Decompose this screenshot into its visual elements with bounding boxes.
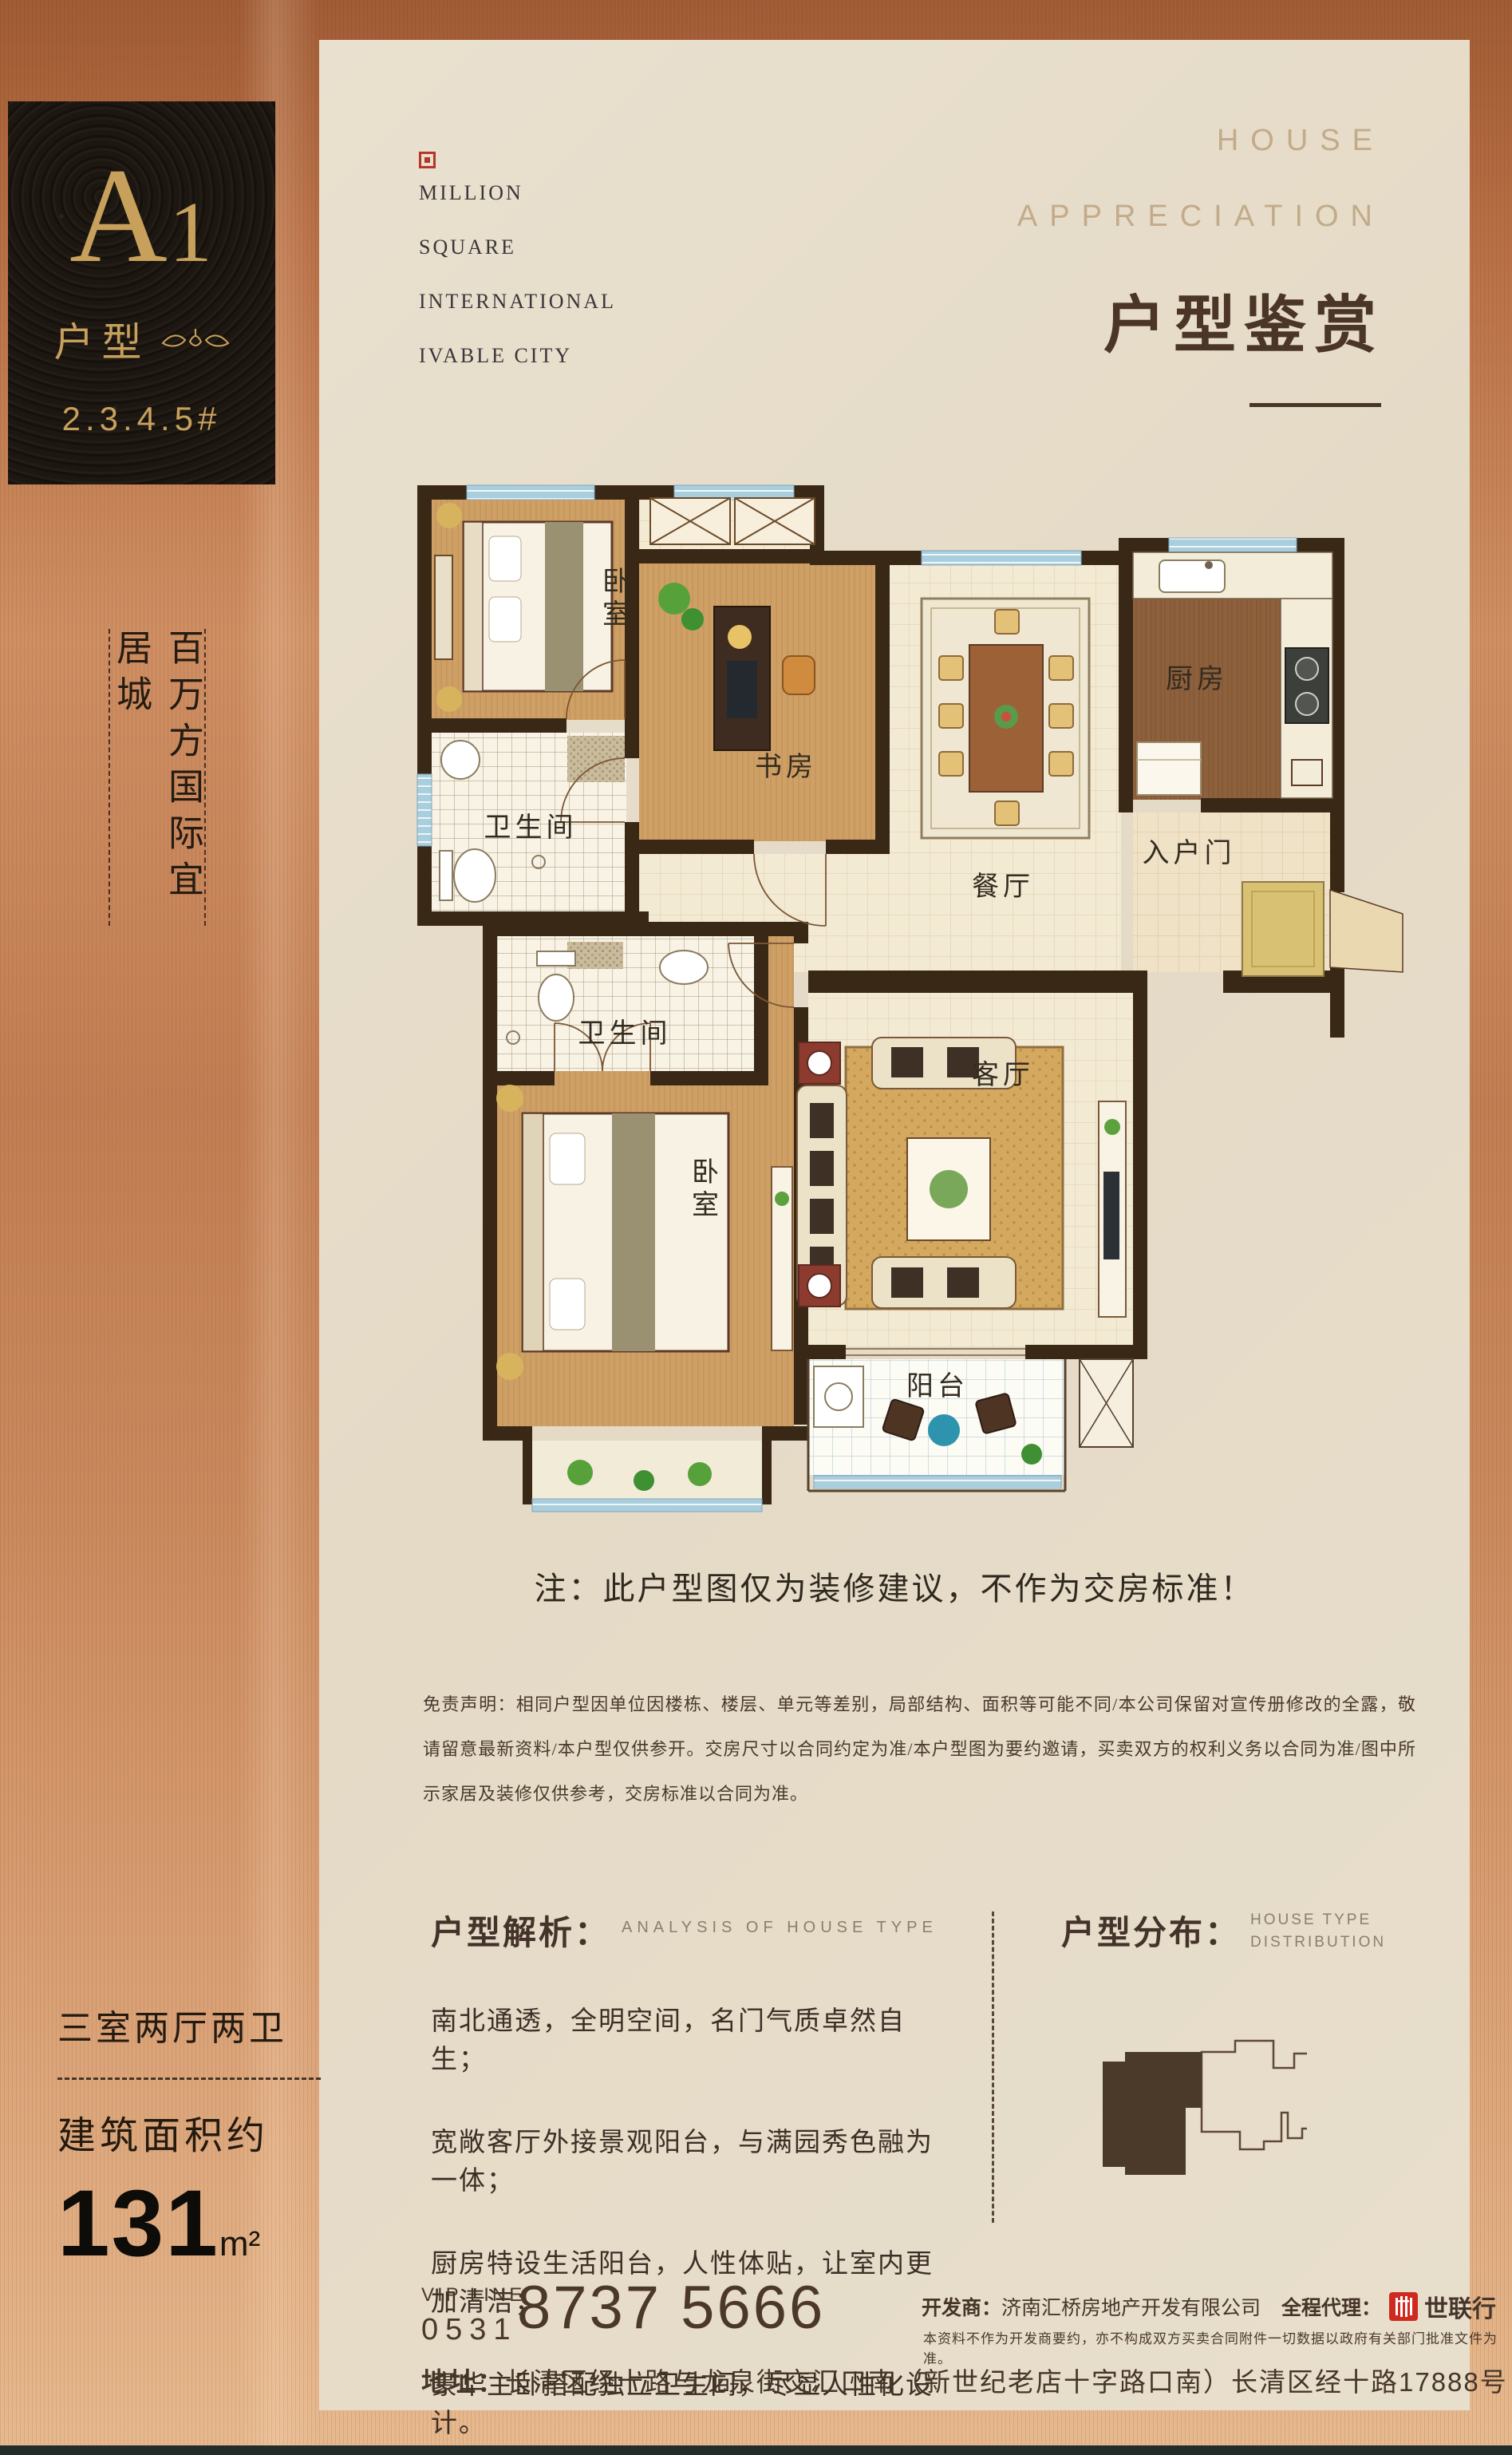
building-footprint-diagram <box>1092 2031 1307 2191</box>
room-label-balcony: 阳台 <box>906 1371 969 1401</box>
analysis-point: 宽敞客厅外接景观阳台，与满园秀色融为一体； <box>431 2121 957 2197</box>
room-label-kitchen: 厨房 <box>1166 664 1228 694</box>
brand-line: INTERNATIONAL <box>419 290 616 314</box>
brand-line: SQUARE <box>419 235 616 259</box>
room-label-study: 书房 <box>755 752 817 782</box>
area-code: 0531 <box>421 2313 525 2347</box>
flourish-icon <box>161 326 230 353</box>
unit-badge: A1 户型 2.3.4.5# <box>8 101 275 484</box>
room-label-dining: 餐厅 <box>972 872 1034 902</box>
area-value: 131m² <box>57 2169 321 2278</box>
brand-block: MILLION SQUARE INTERNATIONAL IVABLE CITY <box>419 152 616 398</box>
agent-logo-icon <box>1389 2292 1418 2321</box>
address-text: 长清区经十路与龙泉街交汇口南（新世纪老店十字路口南）长清区经十路17888号 <box>505 2367 1508 2397</box>
brand-line: MILLION <box>419 181 616 205</box>
dining-furniture <box>922 599 1089 838</box>
bottom-edge-strip <box>0 2445 1512 2455</box>
disclaimer-text: 免责声明：相同户型因单位因楼栋、楼层、单元等差别，局部结构、面积等可能不同/本公… <box>423 1682 1416 1817</box>
poster-page: A1 户型 2.3.4.5# MILLION SQUARE INTERNATIO… <box>0 0 1512 2455</box>
slogan-text: 百万方国际宜居城 <box>105 629 209 926</box>
room-label-entry: 入户门 <box>1143 838 1236 868</box>
analysis-subtitle: ANALYSIS OF HOUSE TYPE <box>622 1919 938 1937</box>
room-label-living: 客厅 <box>972 1060 1034 1090</box>
title-underline <box>1249 403 1381 407</box>
analysis-section: 户型解析：ANALYSIS OF HOUSE TYPE 南北通透，全明空间，名门… <box>431 1906 957 2440</box>
area-label: 建筑面积约 <box>57 2104 321 2160</box>
footprint-outline <box>1202 2041 1307 2149</box>
agent-name: 世联行 <box>1424 2289 1496 2324</box>
phone-number: 8737 5666 <box>517 2273 825 2342</box>
page-title: 户型鉴赏 <box>1017 275 1384 365</box>
specs-block: 三室两厅两卫 建筑面积约 131m² <box>57 1999 321 2278</box>
vip-label: VIP LINE <box>421 2284 525 2307</box>
unit-type-label: 户型 <box>54 310 150 368</box>
room-label-bath2: 卫生间 <box>578 1018 672 1049</box>
vip-line-block: VIP LINE 0531 <box>421 2284 525 2347</box>
layout-spec: 三室两厅两卫 <box>57 1999 321 2050</box>
red-square-icon <box>419 152 436 168</box>
distribution-subtitle: HOUSE TYPE <box>1250 1911 1372 1928</box>
header-en-line: APPRECIATION <box>1017 200 1384 234</box>
developer-label: 开发商： <box>922 2292 1001 2321</box>
dashed-divider <box>992 1911 994 2223</box>
room-label-bath1: 卫生间 <box>484 812 578 843</box>
dashed-rule <box>57 2077 321 2080</box>
distribution-subtitle: DISTRIBUTION <box>1250 1934 1386 1951</box>
address-label: 地址： <box>421 2367 505 2397</box>
building-numbers: 2.3.4.5# <box>8 400 275 438</box>
vertical-slogan: 百万方国际宜居城 <box>109 629 206 926</box>
developer-row: 开发商：济南汇桥房地产开发有限公司 全程代理： 世联行 <box>922 2289 1496 2324</box>
analysis-point: 南北通透，全明空间，名门气质卓然自生； <box>431 1999 957 2076</box>
distribution-section: 户型分布：HOUSE TYPEDISTRIBUTION <box>1061 1906 1444 1955</box>
address-line: 地址：长清区经十路与龙泉街交汇口南（新世纪老店十字路口南）长清区经十路17888… <box>421 2361 1508 2399</box>
brand-line: IVABLE CITY <box>419 344 616 368</box>
agent-label: 全程代理： <box>1281 2292 1381 2321</box>
developer-name: 济南汇桥房地产开发有限公司 <box>1001 2292 1261 2321</box>
plan-note: 注：此户型图仅为装修建议，不作为交房标准！ <box>319 1563 1470 1609</box>
unit-code: A1 <box>8 148 275 283</box>
header-en-line: HOUSE <box>1017 124 1384 158</box>
floorplan-svg: 卧室 书房 卫生间 餐厅 厨房 入户门 客厅 卫生间 卧室 阳台 <box>411 479 1416 1532</box>
footprint-unit-a1 <box>1103 2052 1202 2175</box>
section-header: HOUSE APPRECIATION 户型鉴赏 <box>1017 124 1384 407</box>
analysis-title: 户型解析： <box>431 1906 610 1955</box>
entry-area <box>1242 882 1403 976</box>
distribution-title: 户型分布： <box>1061 1906 1241 1955</box>
